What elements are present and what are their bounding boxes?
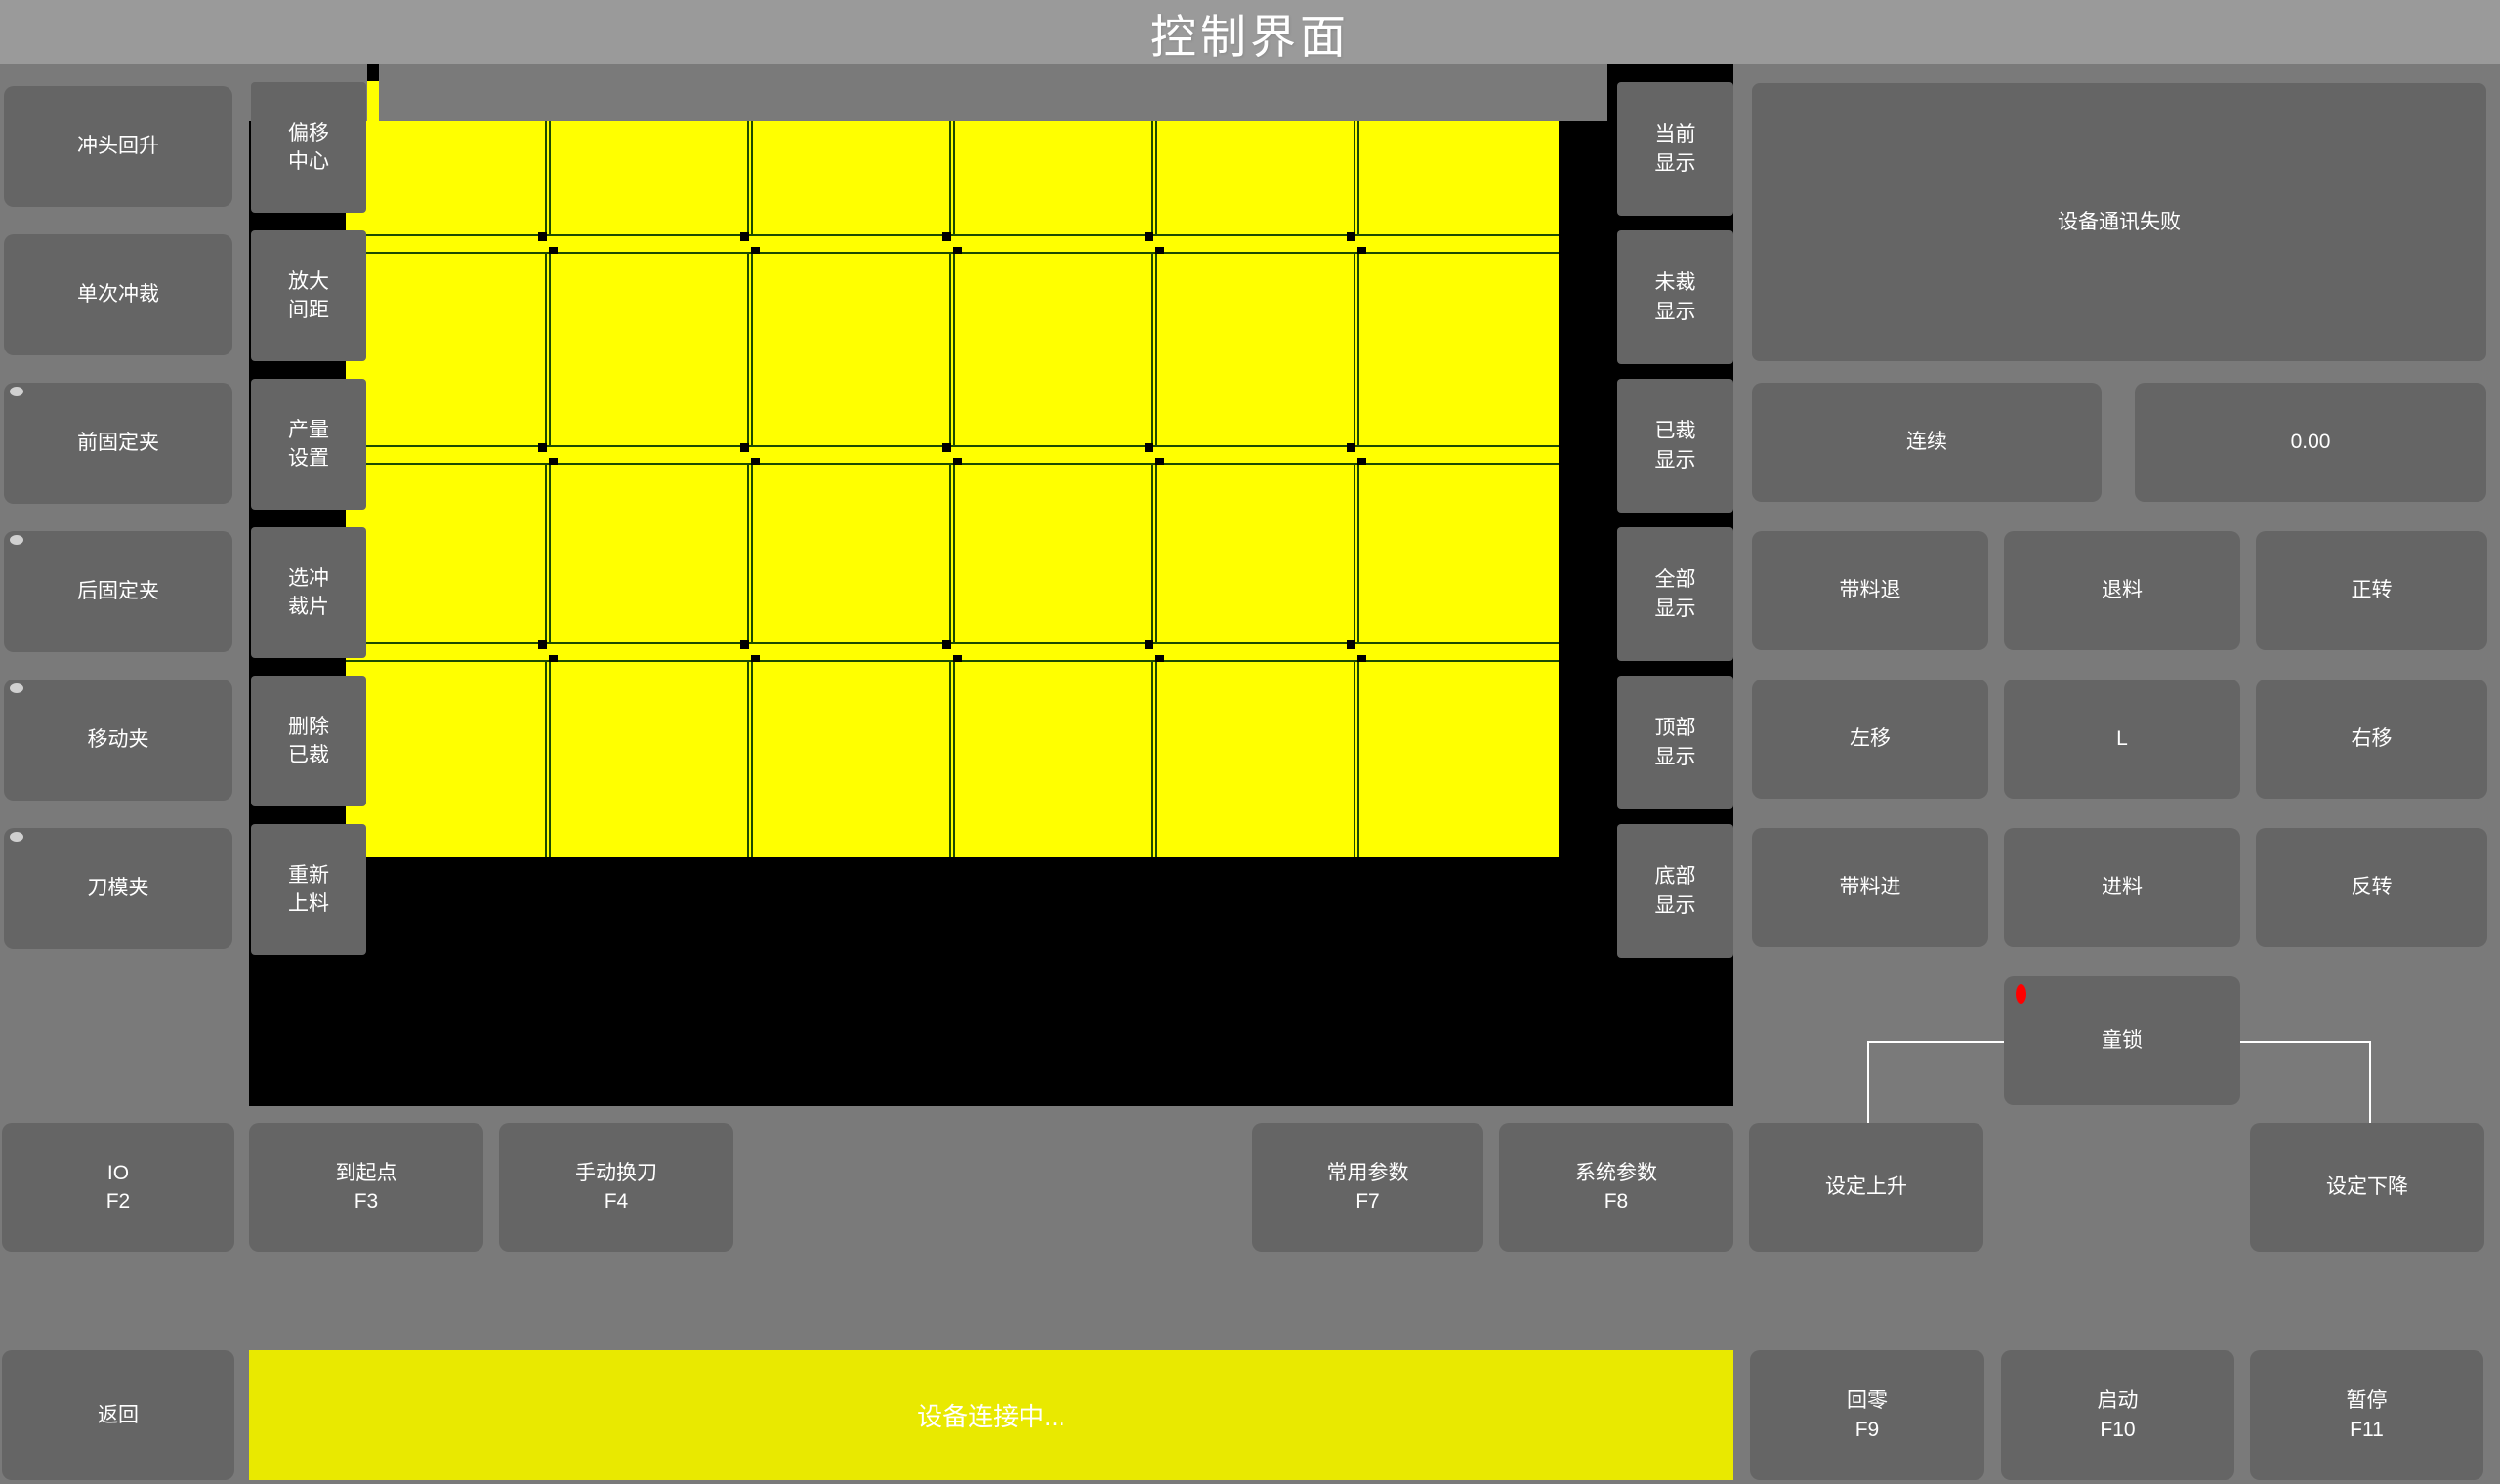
sheet-column-divider bbox=[747, 121, 753, 234]
button-moving-clamp[interactable]: 移动夹 bbox=[4, 680, 232, 801]
button-pause-f11[interactable]: 暂停F11 bbox=[2250, 1350, 2483, 1480]
button-label: 上料 bbox=[288, 889, 329, 918]
button-common-params-f7[interactable]: 常用参数F7 bbox=[1252, 1123, 1483, 1252]
button-label: 移动夹 bbox=[88, 725, 149, 754]
button-label: 删除 bbox=[288, 713, 329, 741]
sheet-corner-tick bbox=[740, 640, 749, 649]
sheet-cell[interactable] bbox=[1154, 465, 1356, 642]
sheet-cell[interactable] bbox=[346, 662, 548, 857]
button-show-uncut[interactable]: 未裁显示 bbox=[1617, 230, 1733, 364]
button-label: 回零 bbox=[1847, 1386, 1888, 1415]
button-unload-material[interactable]: 退料 bbox=[2004, 531, 2240, 650]
button-die-clamp[interactable]: 刀模夹 bbox=[4, 828, 232, 949]
control-screen: 控制界面 冲头回升 单次冲裁 前固定夹 后固定夹 移动夹 刀模夹 偏移中心 放大… bbox=[0, 0, 2500, 1484]
sheet-column-divider bbox=[949, 121, 955, 234]
button-label: L bbox=[2116, 724, 2128, 753]
button-show-current[interactable]: 当前显示 bbox=[1617, 82, 1733, 216]
button-label: 中心 bbox=[288, 147, 329, 176]
button-label: 重新 bbox=[288, 861, 329, 889]
sheet-column-divider bbox=[1151, 121, 1157, 234]
button-l-center[interactable]: L bbox=[2004, 680, 2240, 799]
button-label: 带料退 bbox=[1840, 576, 1901, 604]
button-back[interactable]: 返回 bbox=[2, 1350, 234, 1480]
sheet-preview bbox=[346, 81, 1559, 857]
button-label: 放大 bbox=[288, 268, 329, 296]
page-title: 控制界面 bbox=[1150, 0, 1350, 66]
button-show-all[interactable]: 全部显示 bbox=[1617, 527, 1733, 661]
sheet-cell[interactable] bbox=[548, 662, 750, 857]
button-to-origin-f3[interactable]: 到起点F3 bbox=[249, 1123, 483, 1252]
button-label: 手动换刀 bbox=[575, 1159, 657, 1187]
sheet-column-divider bbox=[1354, 254, 1359, 445]
sheet-cell[interactable] bbox=[750, 465, 952, 642]
button-label: 带料进 bbox=[1840, 873, 1901, 901]
connection-status-bar: 设备连接中... bbox=[249, 1350, 1733, 1480]
status-text: 设备通讯失败 bbox=[2058, 208, 2181, 236]
sheet-column-divider bbox=[545, 254, 551, 445]
button-show-top[interactable]: 顶部显示 bbox=[1617, 676, 1733, 809]
sheet-web-strip bbox=[346, 445, 1559, 465]
sheet-column-divider bbox=[747, 662, 753, 857]
connector-line bbox=[2369, 1041, 2371, 1123]
button-label: 当前 bbox=[1655, 120, 1696, 148]
button-home-f9[interactable]: 回零F9 bbox=[1750, 1350, 1984, 1480]
button-label: 显示 bbox=[1655, 743, 1696, 771]
sheet-cell[interactable] bbox=[548, 254, 750, 445]
sheet-corner-tick bbox=[538, 443, 547, 452]
clamp-led-icon bbox=[10, 683, 23, 693]
button-label: 童锁 bbox=[2102, 1026, 2143, 1054]
button-label: 设定下降 bbox=[2326, 1173, 2408, 1201]
sheet-corner-tick bbox=[740, 232, 749, 241]
button-label: 显示 bbox=[1655, 891, 1696, 920]
sheet-web-strip bbox=[346, 642, 1559, 662]
button-set-rise[interactable]: 设定上升 bbox=[1749, 1123, 1983, 1252]
button-label: 右移 bbox=[2352, 724, 2393, 753]
button-label: 启动 bbox=[2098, 1386, 2139, 1415]
button-label: 常用参数 bbox=[1327, 1159, 1409, 1187]
sheet-cell[interactable] bbox=[952, 465, 1154, 642]
fkey-label: F2 bbox=[106, 1187, 131, 1216]
button-io-f2[interactable]: IOF2 bbox=[2, 1123, 234, 1252]
button-label: 后固定夹 bbox=[77, 577, 159, 605]
button-delete-cut[interactable]: 删除已裁 bbox=[251, 676, 366, 806]
fkey-label: F11 bbox=[2350, 1416, 2384, 1444]
device-status-message: 设备通讯失败 bbox=[1752, 83, 2486, 361]
button-label: 全部 bbox=[1655, 565, 1696, 594]
sheet-column-divider bbox=[1354, 662, 1359, 857]
sheet-column-divider bbox=[1151, 465, 1157, 642]
sheet-corner-tick bbox=[1145, 443, 1153, 452]
sheet-column-divider bbox=[1151, 254, 1157, 445]
sheet-column-divider bbox=[1354, 121, 1359, 234]
button-label: 设定上升 bbox=[1825, 1173, 1907, 1201]
sheet-corner-tick bbox=[1347, 640, 1355, 649]
button-label: 正转 bbox=[2352, 576, 2393, 604]
button-label: 顶部 bbox=[1655, 714, 1696, 742]
fkey-label: F8 bbox=[1604, 1187, 1629, 1216]
button-label: 未裁 bbox=[1655, 268, 1696, 297]
button-rear-clamp[interactable]: 后固定夹 bbox=[4, 531, 232, 652]
button-label: 退料 bbox=[2102, 576, 2143, 604]
button-forward-rotate[interactable]: 正转 bbox=[2256, 531, 2487, 650]
button-label: 选冲 bbox=[288, 564, 329, 593]
sheet-column-divider bbox=[545, 465, 551, 642]
sheet-cell[interactable] bbox=[952, 121, 1154, 234]
sheet-column-divider bbox=[1151, 662, 1157, 857]
button-label: 偏移 bbox=[288, 119, 329, 147]
button-label: 前固定夹 bbox=[77, 429, 159, 457]
connector-line bbox=[1867, 1041, 1869, 1123]
button-label: 设置 bbox=[288, 444, 329, 473]
button-move-right[interactable]: 右移 bbox=[2256, 680, 2487, 799]
button-set-lower[interactable]: 设定下降 bbox=[2250, 1123, 2484, 1252]
clamp-led-icon bbox=[10, 387, 23, 396]
sheet-cell[interactable] bbox=[1154, 662, 1356, 857]
clamp-led-icon bbox=[10, 832, 23, 842]
button-label: 显示 bbox=[1655, 149, 1696, 178]
button-offset-center[interactable]: 偏移中心 bbox=[251, 82, 366, 213]
fkey-label: F3 bbox=[354, 1187, 379, 1216]
button-label: 显示 bbox=[1655, 298, 1696, 326]
fkey-label: F9 bbox=[1855, 1416, 1880, 1444]
button-label: 间距 bbox=[288, 296, 329, 324]
button-enlarge-spacing[interactable]: 放大间距 bbox=[251, 230, 366, 361]
button-front-clamp[interactable]: 前固定夹 bbox=[4, 383, 232, 504]
button-system-params-f8[interactable]: 系统参数F8 bbox=[1499, 1123, 1733, 1252]
value-display[interactable]: 0.00 bbox=[2135, 383, 2486, 502]
button-reload-material[interactable]: 重新上料 bbox=[251, 824, 366, 955]
sheet-column-divider bbox=[949, 254, 955, 445]
sheet-cell[interactable] bbox=[1356, 254, 1559, 445]
button-punch-raise[interactable]: 冲头回升 bbox=[4, 86, 232, 207]
button-select-pieces[interactable]: 选冲裁片 bbox=[251, 527, 366, 658]
button-label: IO bbox=[107, 1159, 129, 1187]
sheet-cell[interactable] bbox=[346, 254, 548, 445]
canvas-top-strip-right bbox=[379, 64, 1607, 121]
button-manual-tool-change-f4[interactable]: 手动换刀F4 bbox=[499, 1123, 733, 1252]
sheet-corner-tick bbox=[1347, 232, 1355, 241]
fkey-label: F10 bbox=[2100, 1416, 2135, 1444]
sheet-corner-tick bbox=[942, 640, 951, 649]
sheet-cell[interactable] bbox=[1154, 121, 1356, 234]
button-label: 连续 bbox=[1906, 428, 1947, 456]
button-label: 裁片 bbox=[288, 593, 329, 621]
sheet-column-divider bbox=[949, 465, 955, 642]
button-show-bottom[interactable]: 底部显示 bbox=[1617, 824, 1733, 958]
sheet-column-divider bbox=[545, 121, 551, 234]
value-text: 0.00 bbox=[2291, 428, 2331, 456]
fkey-label: F7 bbox=[1355, 1187, 1380, 1216]
sheet-column-divider bbox=[1354, 465, 1359, 642]
button-label: 刀模夹 bbox=[88, 874, 149, 902]
connector-line bbox=[1867, 1041, 2004, 1043]
sheet-cell[interactable] bbox=[1356, 121, 1559, 234]
button-show-cut[interactable]: 已裁显示 bbox=[1617, 379, 1733, 513]
sheet-web-strip bbox=[346, 234, 1559, 254]
sheet-corner-tick bbox=[538, 232, 547, 241]
button-tape-back[interactable]: 带料退 bbox=[1752, 531, 1988, 650]
sheet-cell[interactable] bbox=[1356, 662, 1559, 857]
button-label: 显示 bbox=[1655, 595, 1696, 623]
button-label: 已裁 bbox=[1655, 417, 1696, 445]
button-tape-forward[interactable]: 带料进 bbox=[1752, 828, 1988, 947]
button-label: 反转 bbox=[2352, 873, 2393, 901]
button-start-f10[interactable]: 启动F10 bbox=[2001, 1350, 2234, 1480]
button-label: 产量 bbox=[288, 416, 329, 444]
button-label: 底部 bbox=[1655, 862, 1696, 890]
status-text: 设备连接中... bbox=[917, 1397, 1065, 1433]
button-single-punch[interactable]: 单次冲裁 bbox=[4, 234, 232, 355]
title-bar: 控制界面 bbox=[0, 0, 2500, 64]
button-label: 冲头回升 bbox=[77, 132, 159, 160]
fkey-label: F4 bbox=[604, 1187, 629, 1216]
sheet-cell[interactable] bbox=[1154, 254, 1356, 445]
sheet-corner-tick bbox=[1145, 640, 1153, 649]
button-continuous-mode[interactable]: 连续 bbox=[1752, 383, 2102, 502]
sheet-cell[interactable] bbox=[750, 121, 952, 234]
button-label: 已裁 bbox=[288, 741, 329, 769]
connector-line bbox=[2240, 1041, 2369, 1043]
sheet-cell[interactable] bbox=[1356, 465, 1559, 642]
button-label: 返回 bbox=[98, 1401, 139, 1429]
sheet-cell[interactable] bbox=[750, 662, 952, 857]
button-label: 左移 bbox=[1850, 724, 1891, 753]
button-label: 到起点 bbox=[336, 1159, 397, 1187]
sheet-cell[interactable] bbox=[548, 465, 750, 642]
sheet-corner-tick bbox=[942, 232, 951, 241]
sheet-corner-tick bbox=[740, 443, 749, 452]
button-label: 进料 bbox=[2102, 873, 2143, 901]
button-yield-settings[interactable]: 产量设置 bbox=[251, 379, 366, 510]
button-feed-material[interactable]: 进料 bbox=[2004, 828, 2240, 947]
button-label: 系统参数 bbox=[1575, 1159, 1657, 1187]
sheet-cell[interactable] bbox=[346, 465, 548, 642]
button-label: 单次冲裁 bbox=[77, 280, 159, 309]
button-child-lock[interactable]: 童锁 bbox=[2004, 976, 2240, 1105]
button-label: 显示 bbox=[1655, 446, 1696, 474]
sheet-column-divider bbox=[747, 465, 753, 642]
sheet-corner-tick bbox=[1347, 443, 1355, 452]
sheet-cell[interactable] bbox=[750, 254, 952, 445]
sheet-cell[interactable] bbox=[952, 254, 1154, 445]
sheet-corner-tick bbox=[538, 640, 547, 649]
sheet-cell[interactable] bbox=[952, 662, 1154, 857]
sheet-corner-tick bbox=[942, 443, 951, 452]
button-label: 暂停 bbox=[2347, 1386, 2388, 1415]
sheet-column-divider bbox=[949, 662, 955, 857]
button-move-left[interactable]: 左移 bbox=[1752, 680, 1988, 799]
sheet-corner-tick bbox=[1145, 232, 1153, 241]
lock-led-icon bbox=[2016, 984, 2026, 1004]
clamp-led-icon bbox=[10, 535, 23, 545]
sheet-column-divider bbox=[747, 254, 753, 445]
button-reverse-rotate[interactable]: 反转 bbox=[2256, 828, 2487, 947]
sheet-cell[interactable] bbox=[346, 121, 548, 234]
sheet-column-divider bbox=[545, 662, 551, 857]
sheet-cell[interactable] bbox=[548, 121, 750, 234]
